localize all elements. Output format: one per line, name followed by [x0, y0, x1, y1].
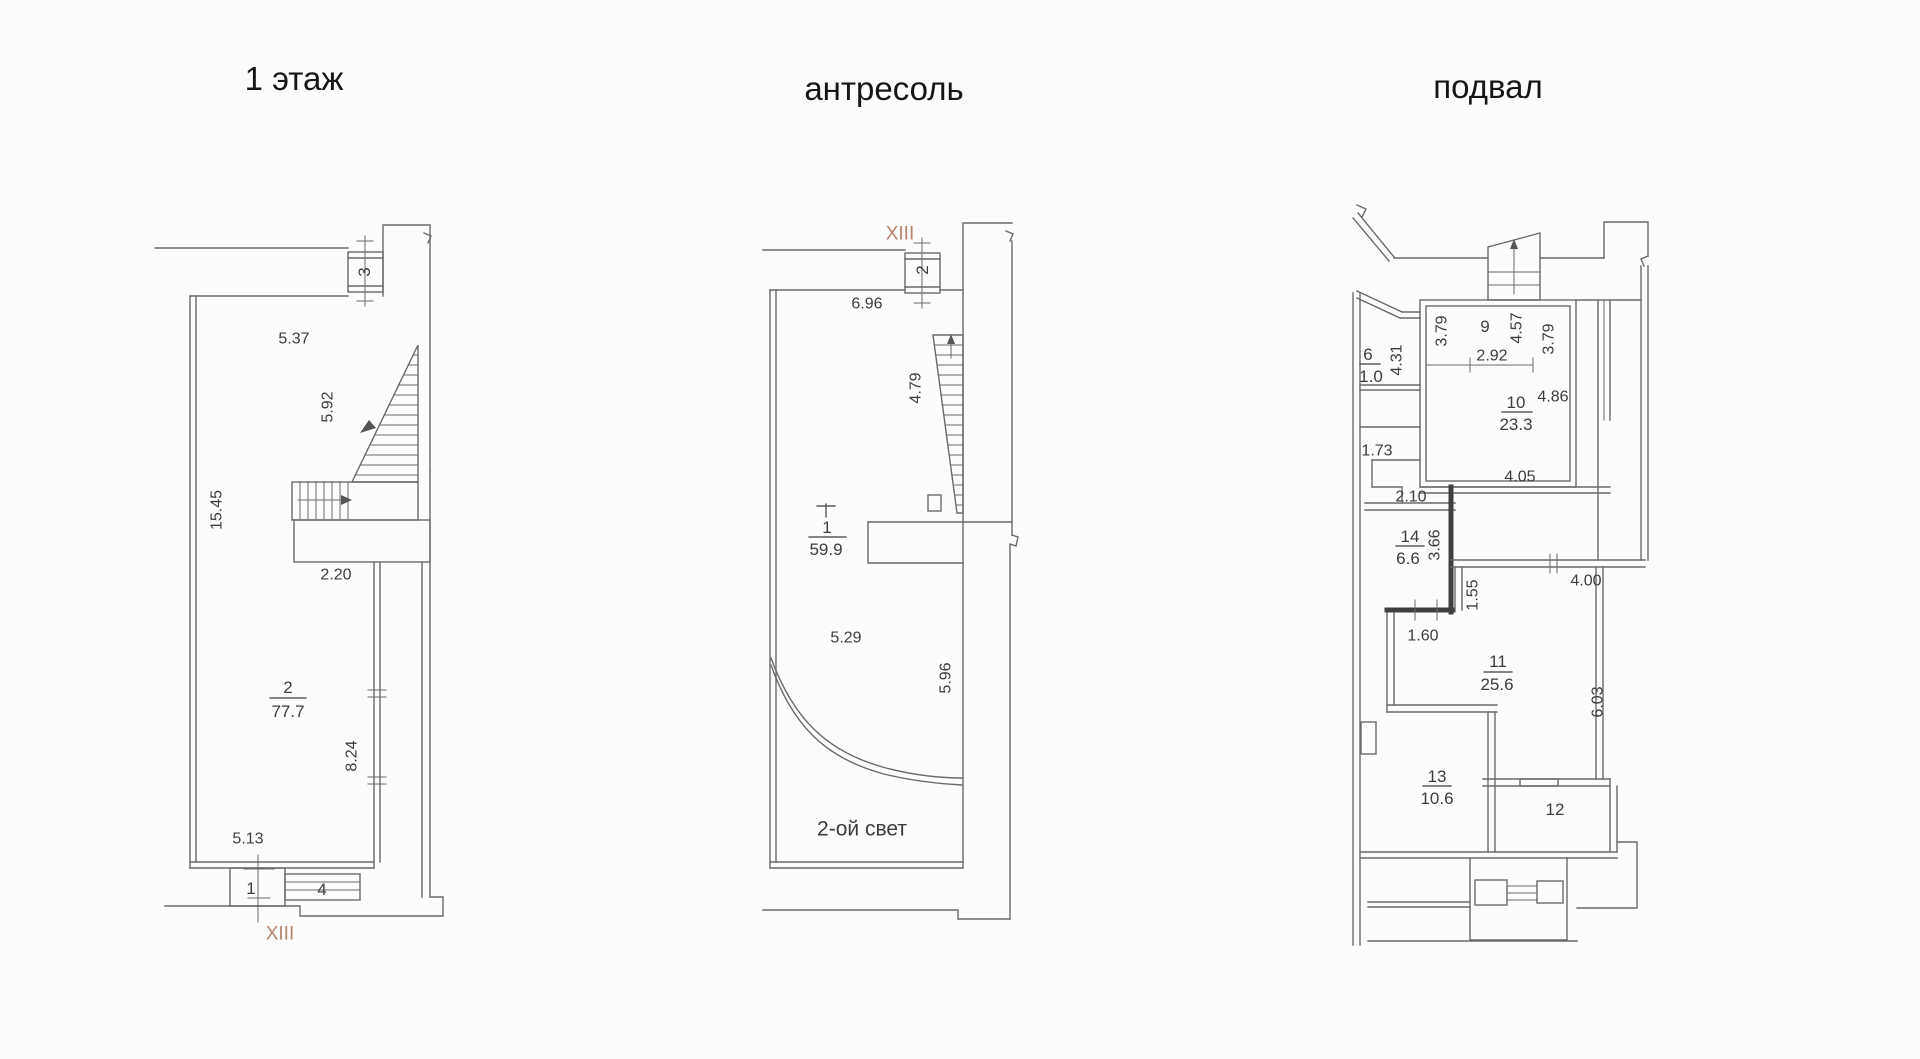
mezzanine-void-label: 2-ой свет	[817, 817, 907, 840]
floor1-section-mark: XIII	[266, 924, 295, 945]
floor1-dim-bottom-width: 5.13	[232, 831, 263, 848]
mezzanine-room1-number: 1	[822, 518, 831, 537]
basement-room13-number: 13	[1428, 767, 1447, 786]
mezzanine-dim-stair-height: 4.79	[908, 372, 925, 403]
floor1-room2-area: 77.7	[271, 702, 304, 721]
floor1-labels: 5.37 5.92 15.45 2.20 8.24 5.13 2 77.7 3 …	[209, 267, 374, 944]
basement-room6-area: 1.0	[1359, 367, 1383, 386]
mezzanine-labels: XIII 6.96 2 4.79 1 59.9 5.29 5.96 2-ой с…	[809, 224, 955, 841]
mezzanine-walls	[763, 223, 1018, 919]
basement-dim-r9-width: 2.92	[1476, 348, 1507, 365]
basement-room9-number: 9	[1480, 317, 1489, 336]
plan-basement: 3.79 9 4.57 2.92 3.79 4.31 6 1.0 10 23.3…	[1353, 205, 1648, 945]
basement-room11-area: 25.6	[1480, 675, 1513, 694]
basement-room10-area: 23.3	[1499, 415, 1532, 434]
plan-floor1: 5.37 5.92 15.45 2.20 8.24 5.13 2 77.7 3 …	[155, 225, 443, 945]
floor1-room3-number: 3	[355, 267, 374, 276]
basement-room6-number: 6	[1363, 345, 1372, 364]
floor1-room4-number: 4	[317, 880, 326, 899]
basement-entry-staircase-bottom	[1470, 858, 1567, 940]
plan-mezzanine: XIII 6.96 2 4.79 1 59.9 5.29 5.96 2-ой с…	[763, 223, 1018, 919]
basement-room12-number: 12	[1546, 800, 1565, 819]
basement-dim-r10-top: 4.86	[1537, 389, 1568, 406]
basement-room14-number: 14	[1401, 527, 1420, 546]
floor1-room2-number: 2	[283, 678, 292, 697]
mezzanine-room1-area: 59.9	[809, 540, 842, 559]
basement-dim-r9-right: 3.79	[1541, 323, 1558, 354]
basement-dim-r10-bottom: 4.05	[1504, 469, 1535, 486]
basement-wall-hatch-left	[1361, 722, 1376, 754]
basement-dim-155: 1.55	[1465, 579, 1482, 610]
basement-dim-r11-right: 6.03	[1590, 686, 1607, 717]
floor-plans-sheet: 1 этаж антресоль подвал	[0, 0, 1920, 1059]
floor1-dim-landing-width: 2.20	[320, 567, 351, 584]
basement-dim-r9-stair: 4.57	[1509, 312, 1526, 343]
floor1-dim-left-height: 15.45	[209, 490, 226, 530]
mezzanine-dim-mid-width: 5.29	[830, 630, 861, 647]
basement-dim-r14-right: 3.66	[1427, 529, 1444, 560]
basement-dim-r9-left: 3.79	[1434, 315, 1451, 346]
floor1-room1-number: 1	[246, 879, 255, 898]
floor1-dim-right-height: 8.24	[344, 740, 361, 771]
floor1-stair-landing	[294, 520, 430, 562]
basement-room10-number: 10	[1507, 393, 1526, 412]
basement-entry-staircase-top	[1488, 233, 1540, 300]
basement-dim-431: 4.31	[1389, 344, 1406, 375]
basement-room13-area: 10.6	[1420, 789, 1453, 808]
mezzanine-dim-top-width: 6.96	[851, 296, 882, 313]
basement-dim-r11-top: 4.00	[1570, 573, 1601, 590]
mezzanine-dim-right-height: 5.96	[938, 662, 955, 693]
plans-drawing: 5.37 5.92 15.45 2.20 8.24 5.13 2 77.7 3 …	[0, 0, 1920, 1059]
mezzanine-section-mark: XIII	[886, 224, 915, 245]
floor1-staircase	[292, 345, 430, 562]
floor1-dim-top-width: 5.37	[278, 331, 309, 348]
basement-room12-window-hatch	[1520, 779, 1558, 786]
mezzanine-room2-number: 2	[913, 265, 932, 274]
basement-dim-r14-door: 1.60	[1407, 628, 1438, 645]
floor1-dim-stair-run: 5.92	[320, 391, 337, 422]
mezzanine-staircase	[933, 334, 963, 513]
basement-walls	[1353, 205, 1648, 945]
floor1-walls	[155, 225, 443, 922]
basement-dim-landing: 2.10	[1395, 489, 1426, 506]
basement-dim-173: 1.73	[1361, 443, 1392, 460]
basement-room14-area: 6.6	[1396, 549, 1420, 568]
basement-room11-number: 11	[1489, 652, 1507, 671]
